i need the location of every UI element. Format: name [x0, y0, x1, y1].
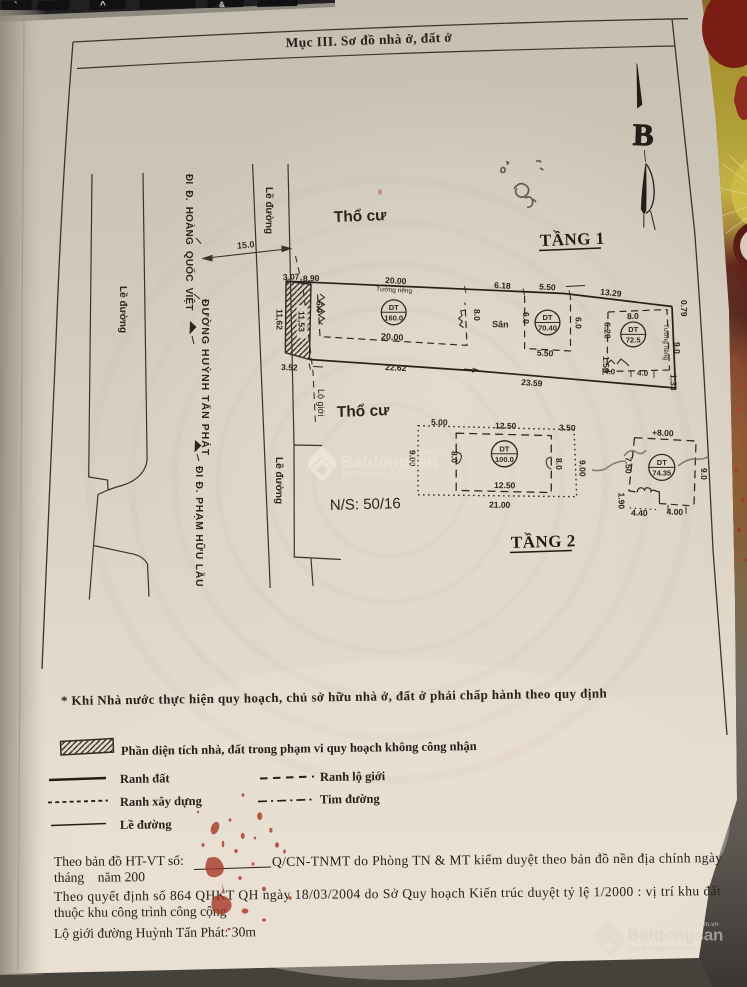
svg-text:1.33: 1.33 [669, 374, 679, 391]
svg-text:N/S: 50/16: N/S: 50/16 [330, 495, 401, 514]
svg-text:Thổ cư: Thổ cư [337, 402, 391, 421]
svg-text:74.35: 74.35 [652, 469, 671, 478]
svg-text:Ranh xây dựng: Ranh xây dựng [120, 794, 203, 809]
svg-text:DT: DT [628, 325, 638, 334]
svg-text:Lề đường: Lề đường [117, 286, 129, 333]
svg-text:Lề đường: Lề đường [263, 187, 275, 234]
svg-text:4.0: 4.0 [637, 369, 649, 378]
svg-text:Tim đường: Tim đường [320, 792, 381, 807]
svg-text:160.0: 160.0 [384, 313, 403, 322]
svg-text:.com.vn: .com.vn [694, 921, 719, 928]
svg-text:5.50: 5.50 [539, 282, 556, 293]
svg-text:15.0: 15.0 [237, 239, 255, 250]
svg-text:12.50: 12.50 [494, 480, 516, 490]
svg-text:100.0: 100.0 [495, 455, 514, 464]
svg-text:11,53: 11,53 [297, 311, 307, 332]
svg-text:20.00: 20.00 [385, 275, 407, 286]
svg-text:Sân: Sân [492, 319, 509, 330]
svg-text:by PropertyGuru: by PropertyGuru [629, 943, 697, 953]
svg-text:9.0: 9.0 [672, 342, 682, 354]
svg-text:TẦNG 2: TẦNG 2 [511, 531, 576, 552]
svg-text:9.00: 9.00 [578, 460, 588, 477]
svg-text:1.50: 1.50 [601, 356, 611, 373]
svg-text:Lề đường: Lề đường [273, 457, 285, 504]
svg-text:6.0: 6.0 [574, 317, 584, 329]
svg-text:tháng năm 200: tháng năm 200 [54, 869, 145, 885]
svg-text:70.40: 70.40 [538, 324, 557, 333]
svg-text:8.90: 8.90 [303, 273, 320, 284]
svg-text:Ranh đất: Ranh đất [120, 771, 171, 786]
svg-text:+8.00: +8.00 [652, 428, 674, 439]
svg-text:8.0: 8.0 [627, 311, 639, 321]
svg-text:3.50: 3.50 [559, 423, 576, 433]
svg-text:12.50: 12.50 [495, 421, 517, 431]
svg-text:&: & [219, 0, 225, 9]
svg-text:Lề đường: Lề đường [120, 817, 173, 832]
svg-text:0.79: 0.79 [679, 300, 689, 317]
svg-text:by PropertyGuru: by PropertyGuru [342, 469, 410, 479]
svg-text:.com.vn: .com.vn [417, 448, 442, 455]
svg-text:4.00: 4.00 [666, 507, 683, 518]
svg-text:3.52: 3.52 [281, 362, 298, 373]
svg-text:Thổ cư: Thổ cư [334, 207, 388, 226]
svg-text:21.00: 21.00 [489, 500, 511, 510]
svg-text:Batdongsan: Batdongsan [627, 926, 723, 945]
svg-text:3.07: 3.07 [283, 271, 300, 282]
svg-text:11,62: 11,62 [275, 309, 285, 330]
svg-text:1.90: 1.90 [617, 493, 627, 510]
svg-text:9.0: 9.0 [699, 468, 709, 480]
svg-text:DT: DT [543, 313, 553, 322]
svg-text:7.50: 7.50 [624, 457, 634, 474]
svg-text:Theo bản đồ HT-VT số:: Theo bản đồ HT-VT số: [54, 853, 184, 869]
svg-text:ĐI Đ. PHẠM HỮU LẦU: ĐI Đ. PHẠM HỮU LẦU [193, 466, 206, 587]
svg-text:ĐƯỜNG HUỲNH TẤN PHÁT: ĐƯỜNG HUỲNH TẤN PHÁT [199, 299, 212, 456]
svg-text:DT: DT [657, 458, 667, 467]
svg-text:TẦNG 1: TẦNG 1 [539, 229, 604, 250]
svg-text:8.0: 8.0 [472, 309, 482, 321]
svg-text:DT: DT [389, 303, 399, 312]
svg-text:6.18: 6.18 [494, 280, 511, 291]
svg-text:ĐI Đ. HOÀNG QUỐC VIỆT: ĐI Đ. HOÀNG QUỐC VIỆT [183, 174, 197, 311]
svg-text:Lộ giới đường Huỳnh Tấn Phát:: Lộ giới đường Huỳnh Tấn Phát: 30m [54, 924, 257, 941]
svg-text:DT: DT [499, 444, 509, 453]
svg-text:72.5: 72.5 [626, 335, 641, 344]
svg-text:Tường riêng: Tường riêng [662, 324, 669, 360]
svg-text:5.50: 5.50 [537, 348, 554, 359]
svg-text:23.59: 23.59 [521, 377, 543, 388]
svg-text:5.00: 5.00 [431, 417, 448, 427]
svg-text:8.0: 8.0 [450, 451, 460, 463]
svg-text:Ranh lộ giới: Ranh lộ giới [320, 769, 386, 784]
svg-text:8.0: 8.0 [554, 458, 564, 470]
svg-text:6.0: 6.0 [521, 312, 531, 324]
svg-text:B: B [632, 117, 654, 153]
svg-text:4.40: 4.40 [631, 508, 648, 519]
svg-text:thuộc khu công trình công cộng: thuộc khu công trình công cộng [54, 903, 227, 920]
svg-text:6.0: 6.0 [315, 301, 325, 313]
svg-text:6.20: 6.20 [603, 322, 613, 339]
svg-text:Lộ giới: Lộ giới [316, 389, 326, 416]
svg-text:22.62: 22.62 [385, 362, 407, 373]
svg-text:^: ^ [100, 0, 106, 11]
svg-text:20.00: 20.00 [381, 331, 404, 342]
